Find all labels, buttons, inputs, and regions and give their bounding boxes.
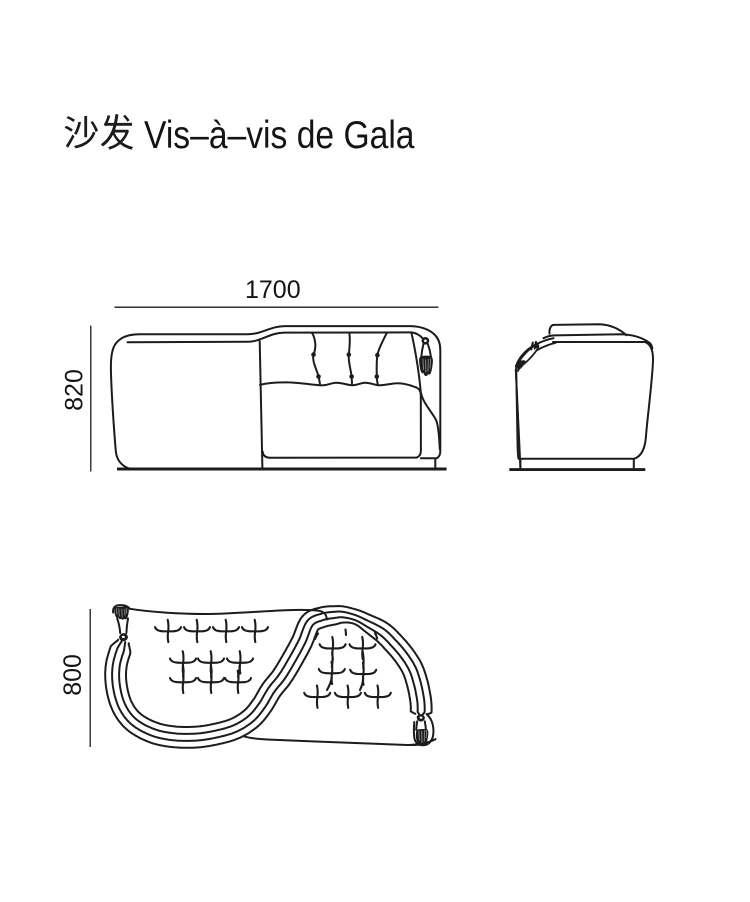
svg-text:1700: 1700 (245, 276, 301, 304)
svg-text:800: 800 (59, 654, 87, 696)
svg-text:820: 820 (61, 369, 89, 411)
svg-text:Vis–à–vis de Gala: Vis–à–vis de Gala (144, 114, 415, 157)
